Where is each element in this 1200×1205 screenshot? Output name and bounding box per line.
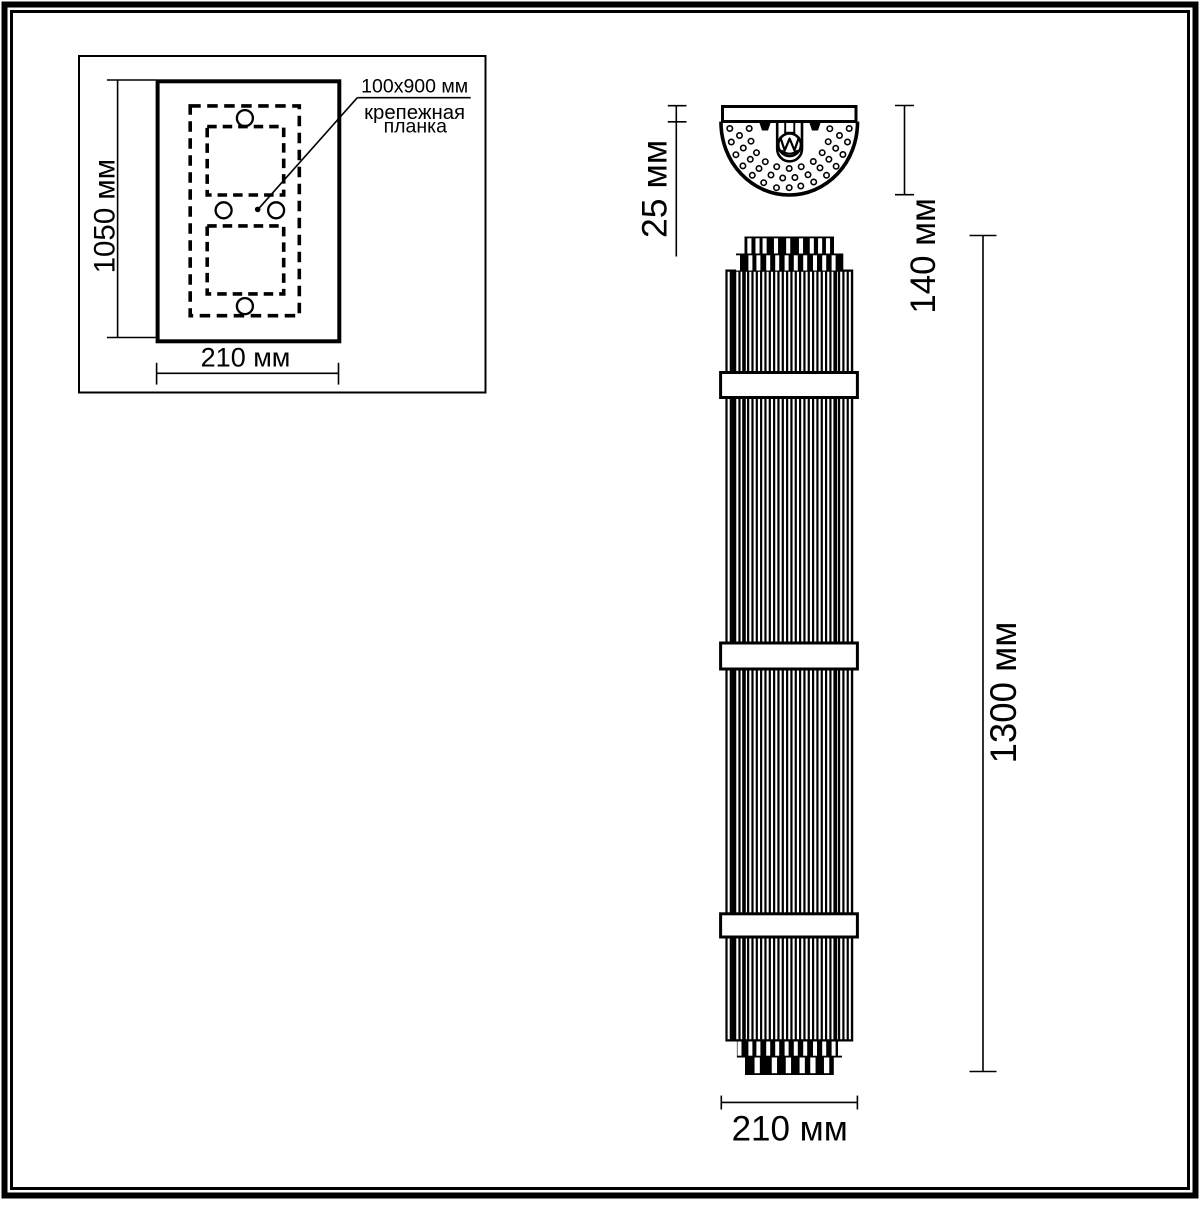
svg-text:25 мм: 25 мм	[634, 140, 674, 238]
svg-text:210 мм: 210 мм	[732, 1110, 848, 1149]
svg-text:планка: планка	[384, 116, 448, 138]
svg-text:140 мм: 140 мм	[904, 198, 943, 314]
svg-text:1050 мм: 1050 мм	[88, 159, 121, 273]
svg-text:210 мм: 210 мм	[201, 342, 291, 372]
svg-text:1300 мм: 1300 мм	[983, 622, 1024, 764]
svg-text:100x900 мм: 100x900 мм	[361, 76, 468, 98]
